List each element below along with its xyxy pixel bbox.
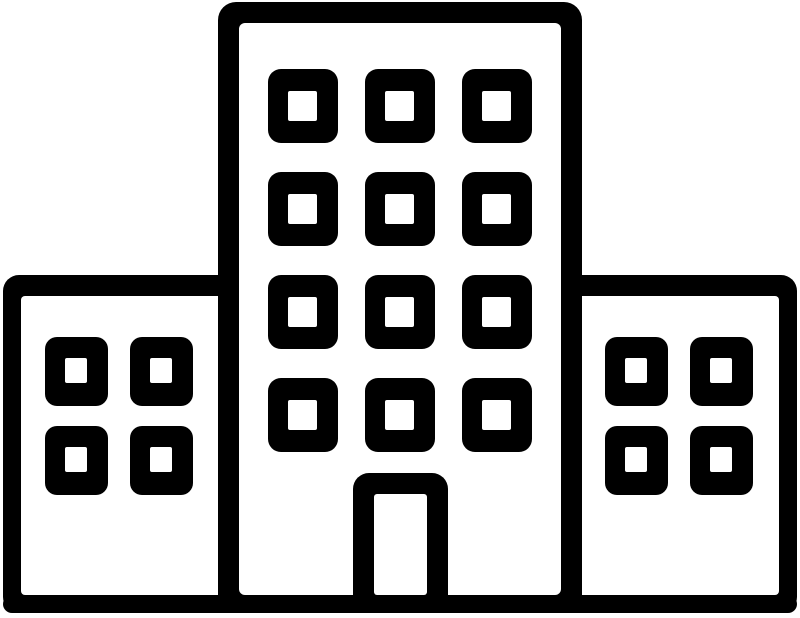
- ground-line: [3, 595, 797, 613]
- window-pane: [288, 91, 317, 121]
- window-pane: [482, 194, 511, 224]
- window: [45, 337, 108, 406]
- window-pane: [65, 447, 87, 472]
- left-wing: [3, 275, 239, 613]
- window: [365, 172, 435, 246]
- window-pane: [150, 358, 172, 383]
- window: [690, 337, 753, 406]
- window-pane: [625, 358, 647, 383]
- window-pane: [710, 358, 732, 383]
- window: [605, 337, 668, 406]
- window-pane: [710, 447, 732, 472]
- window-pane: [625, 447, 647, 472]
- window: [462, 172, 532, 246]
- window: [268, 172, 338, 246]
- window: [462, 378, 532, 452]
- window: [268, 378, 338, 452]
- window: [365, 378, 435, 452]
- window-pane: [65, 358, 87, 383]
- building-icon: [0, 0, 800, 618]
- window: [690, 426, 753, 495]
- window: [462, 275, 532, 349]
- window: [605, 426, 668, 495]
- door-opening: [374, 494, 427, 595]
- window-pane: [482, 400, 511, 430]
- window: [365, 275, 435, 349]
- window: [130, 337, 193, 406]
- window-pane: [482, 91, 511, 121]
- window-pane: [385, 297, 414, 327]
- window: [268, 69, 338, 143]
- window-pane: [385, 400, 414, 430]
- window-pane: [482, 297, 511, 327]
- window: [130, 426, 193, 495]
- window: [268, 275, 338, 349]
- window: [462, 69, 532, 143]
- window-pane: [288, 400, 317, 430]
- window-pane: [385, 91, 414, 121]
- window-pane: [150, 447, 172, 472]
- window-pane: [385, 194, 414, 224]
- window-pane: [288, 194, 317, 224]
- door: [353, 473, 448, 613]
- right-wing: [561, 275, 797, 613]
- window: [45, 426, 108, 495]
- window-pane: [288, 297, 317, 327]
- icon-canvas: [0, 0, 800, 618]
- window: [365, 69, 435, 143]
